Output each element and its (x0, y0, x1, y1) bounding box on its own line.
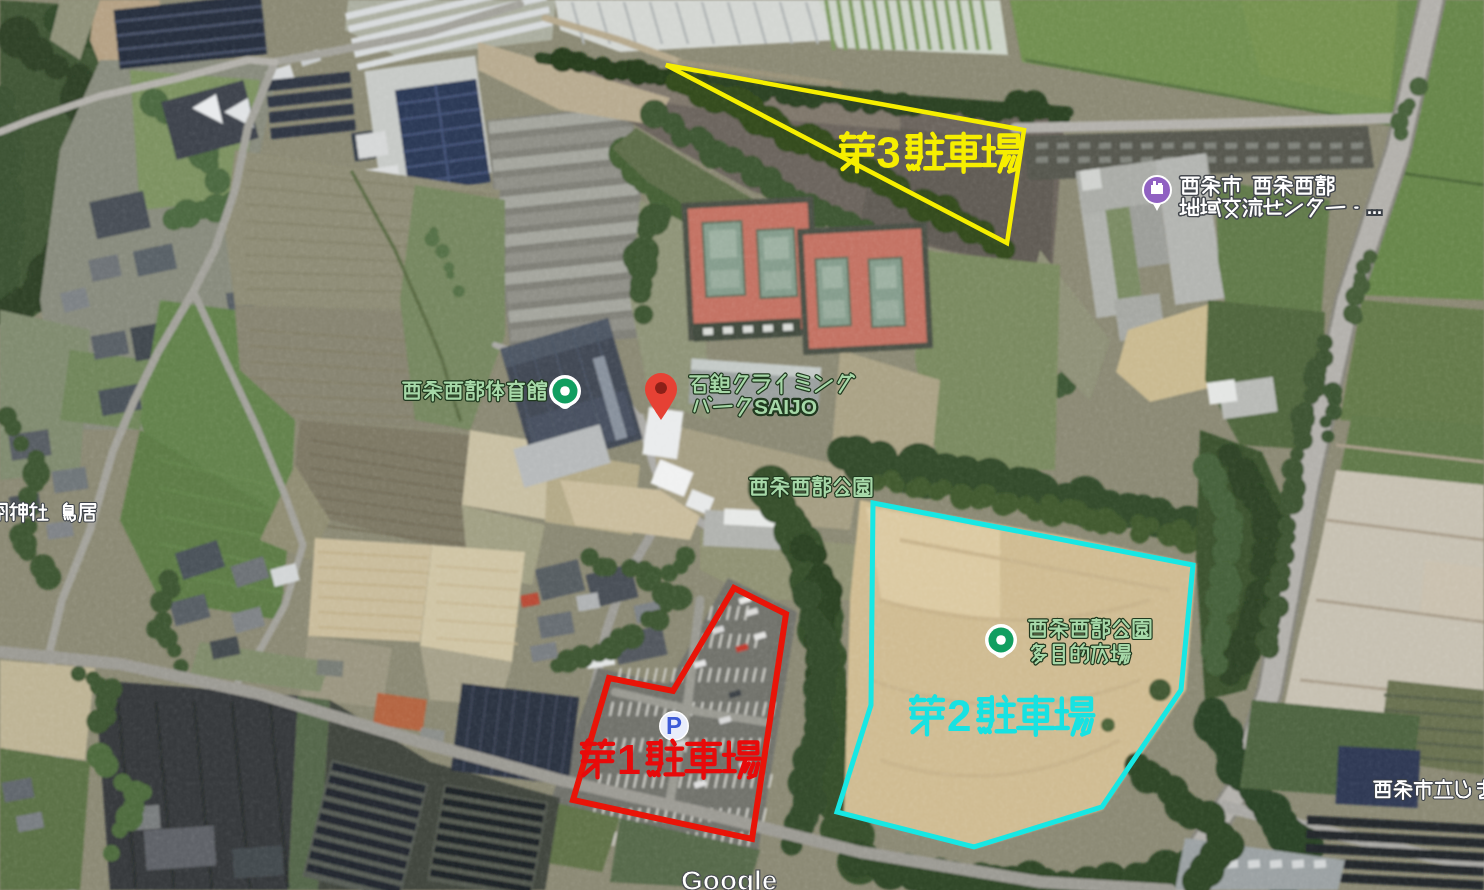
svg-text:2: 2 (947, 691, 971, 740)
svg-text:SAIJO: SAIJO (754, 395, 817, 418)
svg-text:3: 3 (876, 128, 900, 177)
svg-text:P: P (666, 712, 682, 739)
svg-text:Google: Google (681, 865, 777, 890)
svg-text:...: ... (1367, 198, 1382, 218)
svg-text:1: 1 (617, 735, 641, 783)
